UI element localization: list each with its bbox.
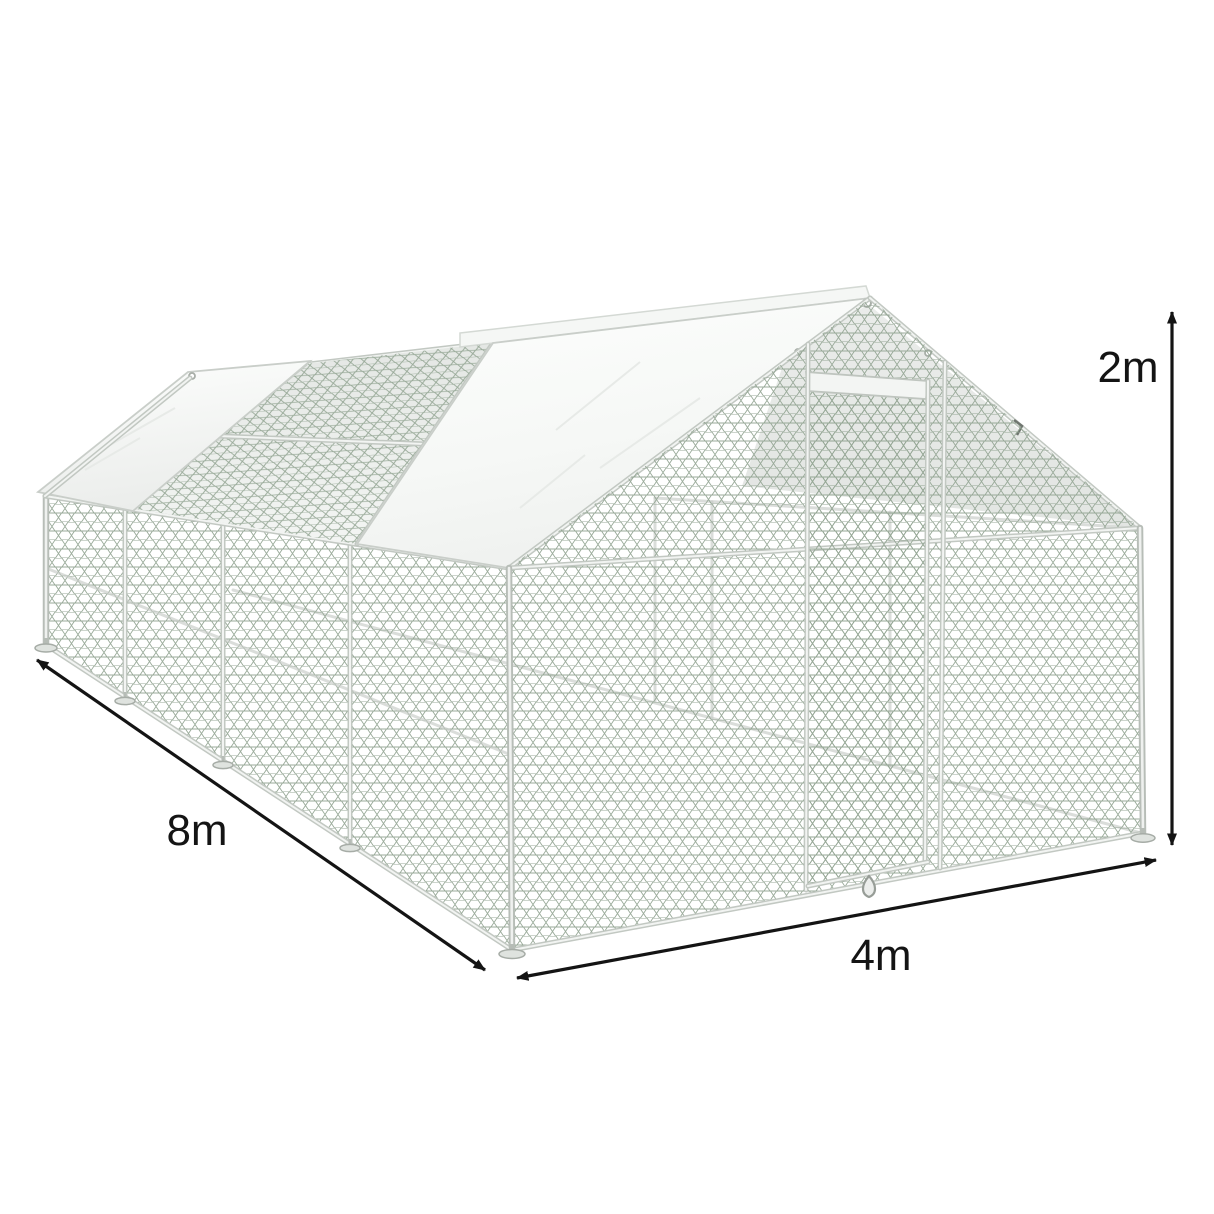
height-dimension-label: 2m <box>1097 346 1158 390</box>
door-mesh <box>806 391 926 890</box>
product-image-canvas: 8m 4m 2m <box>0 0 1214 1214</box>
side-wall-left <box>45 496 512 950</box>
side-wall-mesh <box>45 496 512 950</box>
length-dimension-label: 8m <box>166 809 227 853</box>
width-dimension-label: 4m <box>850 934 911 978</box>
chicken-run-illustration <box>0 0 1214 1214</box>
door <box>806 344 945 897</box>
